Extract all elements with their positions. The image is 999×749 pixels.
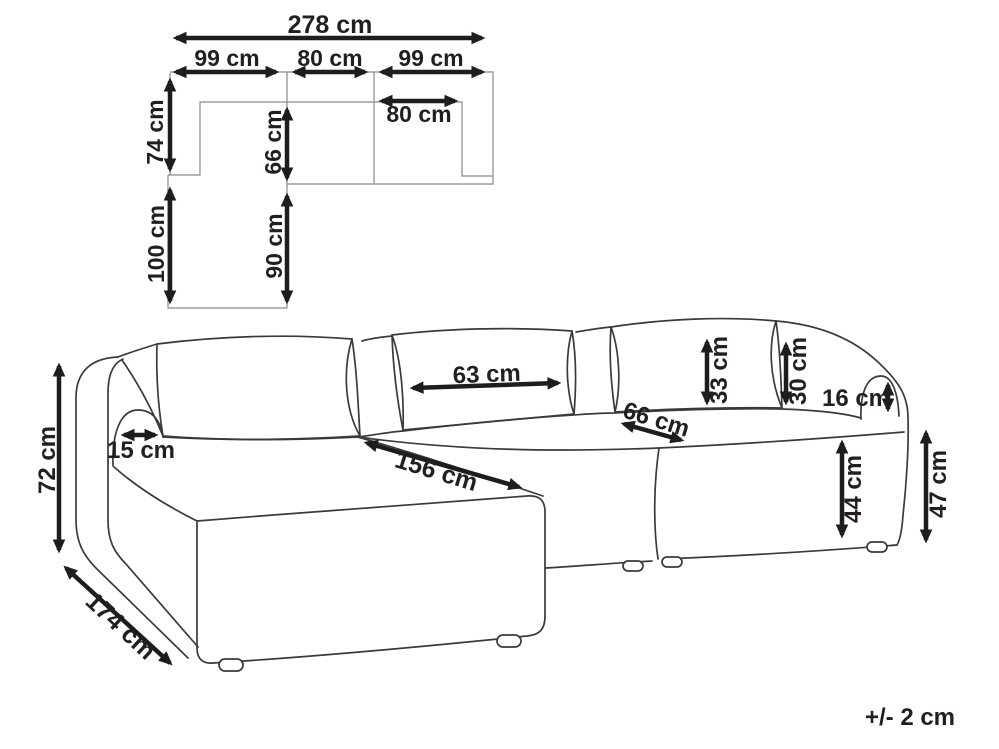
label-seat-depth-plan: 66 cm bbox=[260, 109, 286, 174]
label-side-depth: 174 cm bbox=[80, 587, 161, 665]
label-inner-seat-width: 80 cm bbox=[386, 101, 451, 127]
label-cushion-width: 63 cm bbox=[452, 360, 521, 389]
label-seat-height: 44 cm bbox=[840, 455, 867, 523]
seat-back-edge bbox=[163, 409, 861, 440]
diagram-canvas: 278 cm 99 cm 80 cm 99 cm 74 cm 66 cm 80 … bbox=[0, 0, 999, 749]
label-middle-module: 80 cm bbox=[297, 45, 362, 71]
sofa-leg bbox=[623, 561, 643, 571]
label-chaise-depth: 100 cm bbox=[143, 205, 169, 283]
label-chaise-length: 156 cm bbox=[392, 446, 481, 498]
label-seat-depth-front: 66 cm bbox=[620, 397, 693, 443]
right-section-bottom bbox=[663, 545, 897, 559]
chaise-left-top-edge bbox=[114, 467, 197, 521]
tolerance-note: +/- 2 cm bbox=[865, 704, 955, 731]
label-cushion-height: 33 cm bbox=[706, 336, 733, 404]
backrest-gap-1 bbox=[362, 336, 392, 341]
back-cushion-right-roll-left bbox=[611, 327, 619, 412]
sofa-leg bbox=[497, 635, 521, 647]
label-armrest-height: 47 cm bbox=[925, 450, 952, 518]
sofa-dimension-diagram: 278 cm 99 cm 80 cm 99 cm 74 cm 66 cm 80 … bbox=[0, 0, 999, 749]
label-chaise-seat-depth: 90 cm bbox=[261, 213, 287, 278]
sofa-leg bbox=[662, 557, 682, 567]
left-armrest-top-edge bbox=[118, 344, 157, 357]
back-cushion-middle-roll-left bbox=[392, 335, 403, 430]
label-backrest-height: 30 cm bbox=[785, 337, 812, 405]
backrest-gap-2 bbox=[576, 327, 611, 332]
chaise-front-face bbox=[197, 496, 545, 663]
seat-front-top-edge bbox=[358, 432, 904, 450]
section-divider bbox=[655, 448, 659, 559]
sofa-leg bbox=[867, 542, 887, 552]
label-right-module: 99 cm bbox=[398, 45, 463, 71]
label-armrest-above-seat: 16 cm bbox=[822, 385, 890, 412]
label-overall-width: 278 cm bbox=[288, 11, 373, 39]
label-overall-height: 72 cm bbox=[34, 426, 61, 494]
back-cushion-left bbox=[157, 336, 360, 439]
left-armrest-inner bbox=[108, 359, 198, 647]
back-cushion-right bbox=[610, 319, 782, 412]
label-backrest-depth: 74 cm bbox=[142, 99, 168, 164]
sofa-leg bbox=[219, 659, 243, 671]
label-left-module: 99 cm bbox=[194, 45, 259, 71]
label-armrest-width: 15 cm bbox=[107, 437, 175, 464]
